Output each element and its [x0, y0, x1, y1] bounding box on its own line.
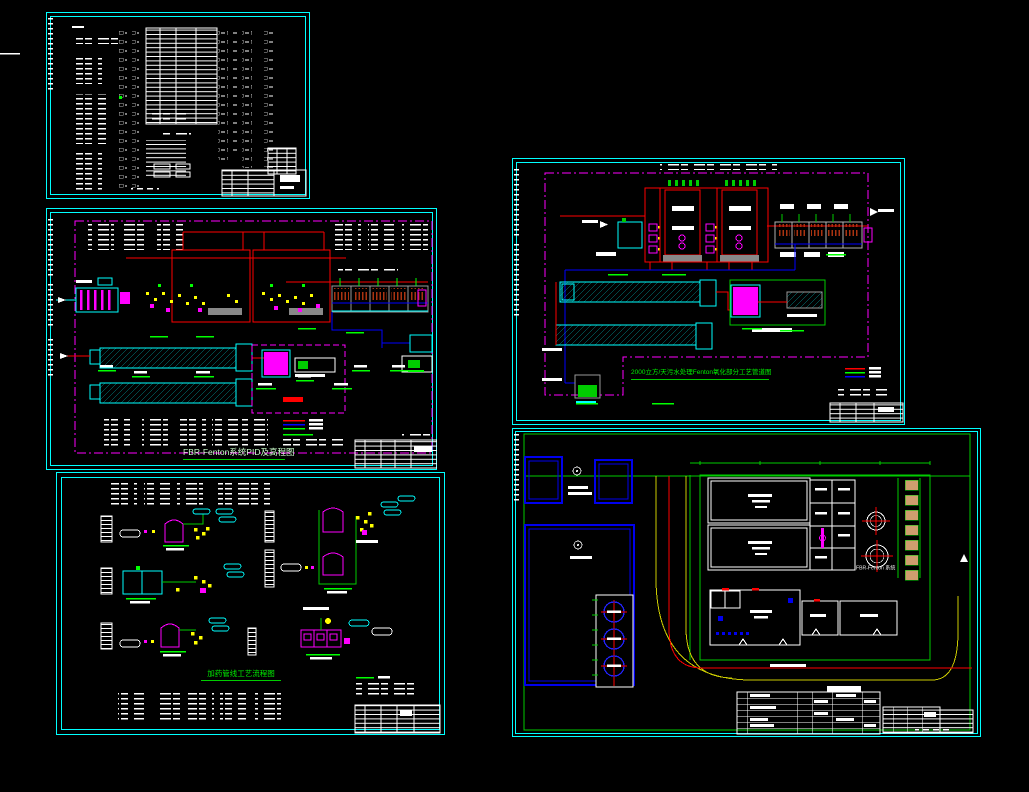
margin-tick-strip	[48, 216, 57, 276]
margin-tick-strip	[48, 338, 57, 378]
reactor-base	[208, 308, 242, 315]
vent-icon	[574, 541, 582, 549]
sheet-dosing[interactable]	[56, 472, 445, 735]
neutralization-tank-bank	[775, 204, 894, 257]
note-row	[660, 162, 720, 170]
blower-unit	[402, 335, 432, 372]
title-block	[830, 403, 903, 422]
feed-tank	[582, 216, 642, 256]
equipment-rooms-grid	[810, 480, 855, 570]
sump-tank	[542, 348, 600, 404]
fenton-reactor-1	[663, 180, 702, 262]
building-office	[710, 588, 800, 645]
vent-icon	[573, 467, 581, 475]
margin-tick-strip	[514, 243, 523, 318]
margin-tick-strip	[514, 166, 523, 236]
flow-arrow	[960, 554, 968, 562]
site-fbr-label: FBR-Fenton 系统	[856, 566, 892, 571]
margin-tick-strip	[48, 15, 57, 91]
intermediate-tank-group	[730, 280, 825, 332]
line-type-legend	[283, 419, 343, 449]
legend-table	[131, 28, 217, 192]
fbr-fenton-tanks	[861, 507, 893, 572]
reactor-base	[289, 308, 323, 315]
title-block	[355, 705, 440, 733]
roads	[656, 476, 972, 680]
spec-text-columns-top	[111, 480, 270, 507]
sheet-legend[interactable]	[46, 12, 310, 199]
dosing-unit-3	[120, 618, 229, 657]
dosing-unit-5	[301, 607, 392, 660]
tank-crosshair-icon	[862, 507, 890, 535]
title-block	[355, 434, 437, 468]
dim-text	[770, 664, 806, 667]
note-row	[717, 162, 777, 170]
canvas-stray-line	[0, 50, 30, 60]
door-notch	[873, 629, 881, 635]
sheet-site-plan[interactable]	[512, 428, 982, 738]
cad-canvas[interactable]: FBR-Fenton系统PID及高程图 加药管线工艺流程图 2000立方/天污水…	[0, 0, 1029, 792]
margin-tick-strip	[514, 432, 522, 502]
fenton-reactor-2	[720, 180, 759, 262]
dosing-sheet-title: 加药管线工艺流程图	[201, 670, 281, 681]
pid-sheet-title: FBR-Fenton系统PID及高程图	[183, 448, 285, 460]
dosing-unit-4	[281, 496, 415, 594]
inclined-clarifiers	[556, 280, 730, 349]
building-storeroom-1	[802, 599, 838, 635]
notes-text-columns	[104, 418, 268, 448]
line-type-legend	[838, 367, 888, 396]
line-legend	[356, 676, 418, 695]
level-gauges	[101, 511, 274, 655]
sheet-pid[interactable]	[46, 208, 437, 470]
sheet-border	[57, 473, 445, 735]
dosing-unit-1	[120, 509, 236, 551]
sheet-fenton[interactable]	[512, 158, 905, 425]
dosing-unit-2	[123, 564, 244, 604]
building-regulating-tank-2	[708, 525, 810, 570]
fbr-tank-row	[592, 595, 633, 687]
title-block	[883, 707, 973, 733]
door-notch	[779, 639, 787, 645]
intermediate-tank-unit	[252, 345, 345, 413]
structures-table	[737, 686, 880, 734]
dosing-column	[821, 528, 824, 548]
parking-stalls	[905, 480, 918, 580]
feed-tank-unit	[56, 278, 130, 312]
building-regulating-tank-1	[708, 478, 810, 523]
return-piping	[332, 312, 410, 348]
building-storeroom-2	[840, 601, 897, 635]
fenton-sheet-title: 2000立方/天污水处理Fenton氧化部分工艺管道图	[631, 370, 769, 380]
margin-tick-strip	[48, 283, 57, 328]
door-notch	[739, 639, 747, 645]
inclined-clarifiers	[60, 344, 264, 406]
door-notch	[812, 629, 820, 635]
spec-text-columns-bottom	[118, 690, 281, 720]
aeration-tank-bank	[332, 268, 428, 312]
instrument-note-blocks	[88, 222, 428, 250]
